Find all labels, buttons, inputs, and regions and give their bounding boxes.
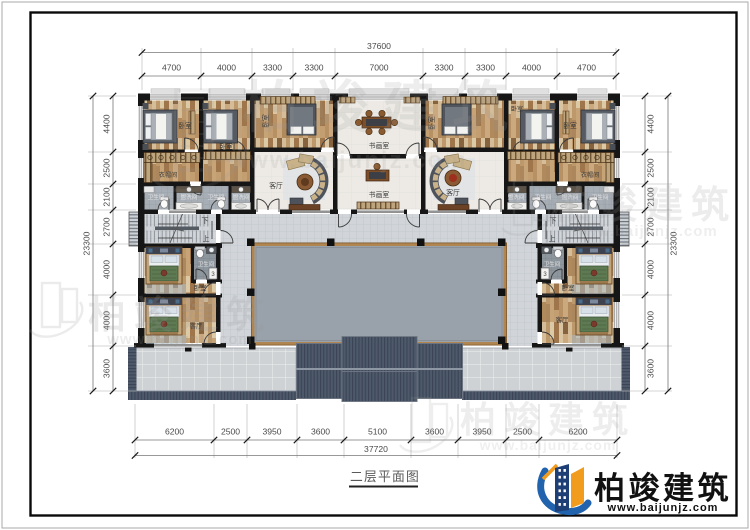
svg-text:4400: 4400 xyxy=(102,114,112,133)
svg-text:2500: 2500 xyxy=(102,158,112,177)
svg-text:2700: 2700 xyxy=(102,217,112,236)
svg-text:www.baijunjz.com: www.baijunjz.com xyxy=(479,437,617,453)
svg-text:2500: 2500 xyxy=(221,427,240,437)
svg-text:衣帽间: 衣帽间 xyxy=(581,171,600,179)
svg-text:书画室: 书画室 xyxy=(369,190,390,199)
svg-text:柏竣建筑: 柏竣建筑 xyxy=(460,399,636,440)
svg-text:上: 上 xyxy=(549,234,556,243)
svg-text:客厅: 客厅 xyxy=(269,181,283,190)
svg-text:4000: 4000 xyxy=(522,63,541,73)
svg-text:客厅: 客厅 xyxy=(446,188,460,197)
svg-text:3600: 3600 xyxy=(102,359,112,378)
svg-text:卧室: 卧室 xyxy=(194,283,207,292)
svg-text:www.baijunjz.com: www.baijunjz.com xyxy=(607,502,719,514)
svg-text:www.baijunjz.com: www.baijunjz.com xyxy=(106,331,252,348)
svg-text:4000: 4000 xyxy=(646,311,656,330)
svg-text:7000: 7000 xyxy=(369,63,388,73)
svg-text:4000: 4000 xyxy=(646,260,656,279)
svg-text:盥洗间: 盥洗间 xyxy=(508,193,525,201)
svg-text:3600: 3600 xyxy=(646,359,656,378)
svg-text:卫生间: 卫生间 xyxy=(148,193,165,201)
svg-text:客厅: 客厅 xyxy=(556,315,569,324)
svg-text:www.baijunjz.com: www.baijunjz.com xyxy=(227,147,467,174)
svg-text:卧室: 卧室 xyxy=(563,121,577,130)
svg-text:柏竣建筑: 柏竣建筑 xyxy=(553,185,737,227)
svg-text:卫生间: 卫生间 xyxy=(544,260,560,268)
svg-text:6200: 6200 xyxy=(165,427,184,437)
svg-text:3300: 3300 xyxy=(263,63,282,73)
svg-text:柏竣建筑: 柏竣建筑 xyxy=(242,76,522,139)
svg-text:盥洗间: 盥洗间 xyxy=(181,193,198,201)
svg-text:5100: 5100 xyxy=(368,427,387,437)
svg-text:3950: 3950 xyxy=(262,427,281,437)
svg-text:卫生间: 卫生间 xyxy=(198,260,214,268)
svg-text:3600: 3600 xyxy=(425,427,444,437)
svg-text:2500: 2500 xyxy=(646,158,656,177)
svg-text:下: 下 xyxy=(202,217,209,225)
svg-text:3300: 3300 xyxy=(304,63,323,73)
svg-text:3300: 3300 xyxy=(476,63,495,73)
svg-text:37720: 37720 xyxy=(364,444,388,454)
svg-text:3600: 3600 xyxy=(311,427,330,437)
svg-text:卫生间: 卫生间 xyxy=(208,193,225,201)
svg-text:卧室: 卧室 xyxy=(562,283,575,292)
svg-text:3300: 3300 xyxy=(434,63,453,73)
svg-text:2100: 2100 xyxy=(102,187,112,206)
svg-text:4700: 4700 xyxy=(162,63,181,73)
svg-text:盥洗间: 盥洗间 xyxy=(233,193,250,201)
svg-text:4000: 4000 xyxy=(217,63,236,73)
svg-text:4400: 4400 xyxy=(646,114,656,133)
svg-text:衣帽间: 衣帽间 xyxy=(159,171,178,179)
svg-text:4000: 4000 xyxy=(102,260,112,279)
svg-text:37600: 37600 xyxy=(367,41,391,51)
svg-text:23300: 23300 xyxy=(82,231,92,255)
svg-text:柏竣建筑: 柏竣建筑 xyxy=(594,471,732,506)
svg-text:www.baijunjz.com: www.baijunjz.com xyxy=(571,223,717,240)
svg-text:上: 上 xyxy=(203,234,210,243)
svg-text:4700: 4700 xyxy=(577,63,596,73)
svg-text:二层平面图: 二层平面图 xyxy=(350,469,420,484)
